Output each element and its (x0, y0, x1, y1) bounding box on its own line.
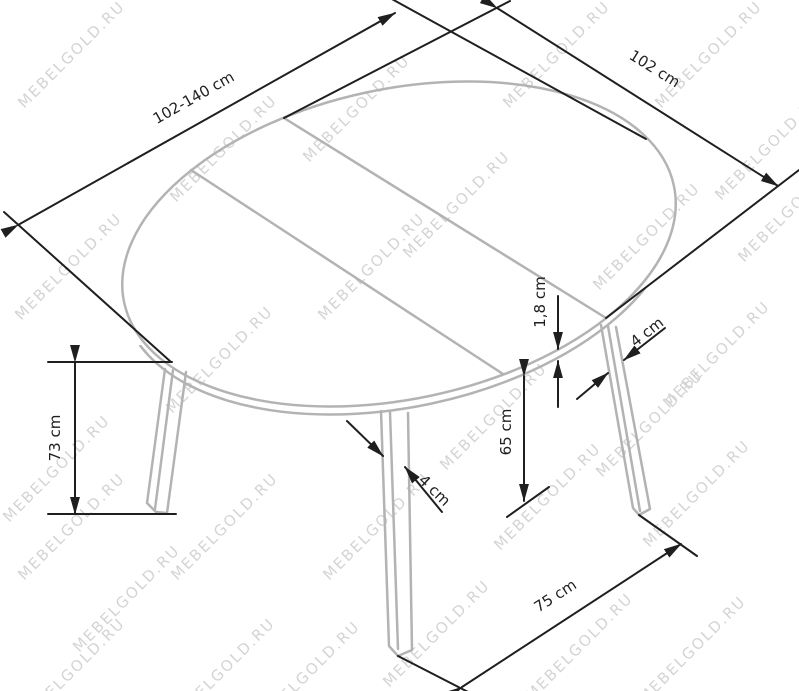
diagram-canvas: MEBELGOLD.RUMEBELGOLD.RUMEBELGOLD.RUMEBE… (0, 0, 799, 691)
leg-front-center (381, 411, 412, 656)
dim-label-span: 75 cm (531, 576, 580, 617)
watermark-text: MEBELGOLD.RU (651, 0, 766, 112)
dim-label-length: 102-140 cm (150, 68, 237, 128)
dim-label-width: 102 cm (626, 46, 683, 91)
watermark-layer: MEBELGOLD.RUMEBELGOLD.RUMEBELGOLD.RUMEBE… (0, 0, 799, 691)
leaf-seam-line-1 (284, 118, 606, 318)
watermark-text: MEBELGOLD.RU (167, 469, 282, 584)
dimension-lines (4, 0, 799, 691)
watermark-text: MEBELGOLD.RU (399, 147, 514, 262)
watermark-text: MEBELGOLD.RU (490, 439, 605, 554)
watermark-text: MEBELGOLD.RU (14, 0, 129, 112)
watermark-text: MEBELGOLD.RU (164, 614, 279, 691)
watermark-text: MEBELGOLD.RU (711, 89, 799, 204)
watermark-text: MEBELGOLD.RU (319, 469, 434, 584)
watermark-text: MEBELGOLD.RU (436, 359, 551, 474)
dim-label-underside: 65 cm (497, 409, 515, 456)
dim-arrow-leg-back-lower (577, 373, 608, 399)
watermark-text: MEBELGOLD.RU (499, 0, 614, 112)
dim-label-leg-back: 4 cm (627, 314, 667, 351)
dim-arrow-leg-front-upper (347, 421, 383, 456)
watermark-text: MEBELGOLD.RU (314, 209, 429, 324)
watermark-text: MEBELGOLD.RU (69, 541, 184, 656)
dim-label-height: 73 cm (46, 415, 64, 462)
dim-label-thickness: 1,8 cm (531, 276, 549, 327)
watermark-text: MEBELGOLD.RU (635, 592, 750, 691)
watermark-text: MEBELGOLD.RU (592, 366, 707, 481)
ext-line-width-left (284, 1, 510, 118)
table-dimension-diagram: MEBELGOLD.RUMEBELGOLD.RUMEBELGOLD.RUMEBE… (0, 0, 799, 691)
watermark-text: MEBELGOLD.RU (299, 51, 414, 166)
watermark-text: MEBELGOLD.RU (14, 614, 129, 691)
watermark-text: MEBELGOLD.RU (639, 436, 754, 551)
